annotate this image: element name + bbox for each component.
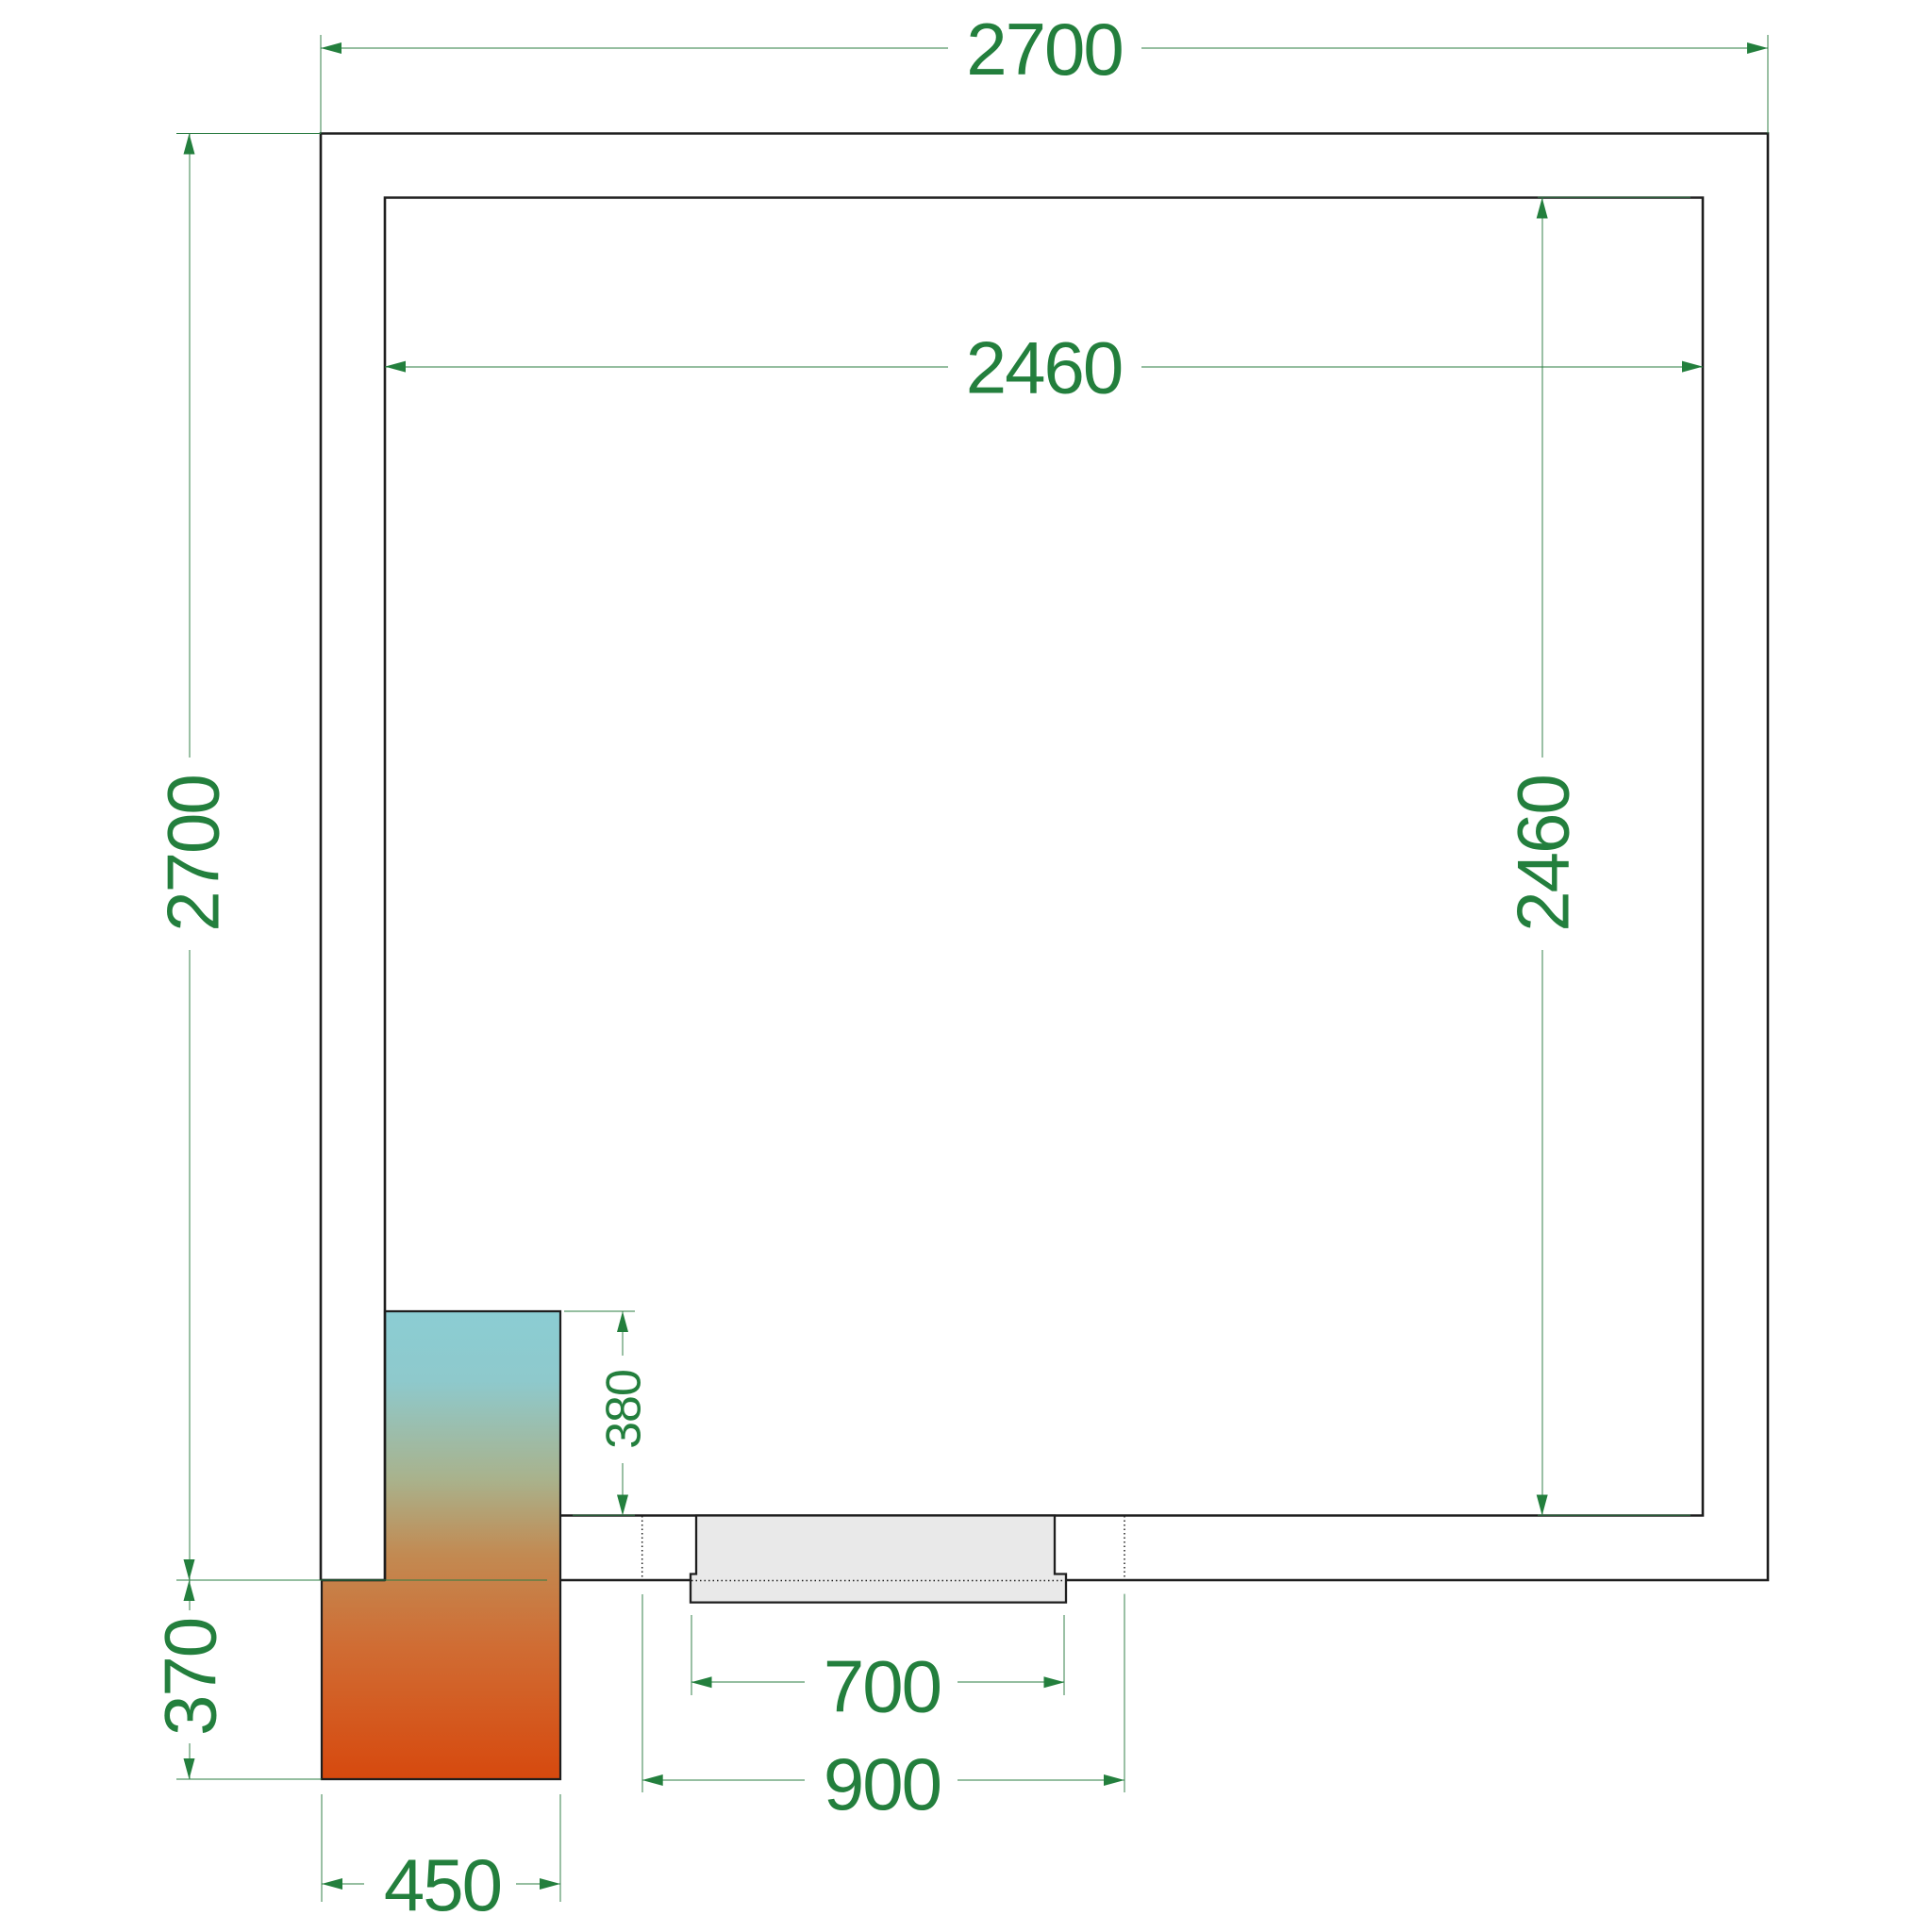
svg-text:2700: 2700	[152, 775, 235, 932]
svg-text:2700: 2700	[966, 8, 1123, 91]
svg-text:380: 380	[597, 1370, 652, 1449]
svg-text:2460: 2460	[966, 326, 1123, 409]
svg-text:2460: 2460	[1502, 775, 1585, 932]
svg-text:900: 900	[824, 1742, 941, 1825]
svg-text:450: 450	[384, 1843, 501, 1926]
svg-text:370: 370	[149, 1619, 232, 1736]
svg-text:700: 700	[824, 1645, 941, 1728]
